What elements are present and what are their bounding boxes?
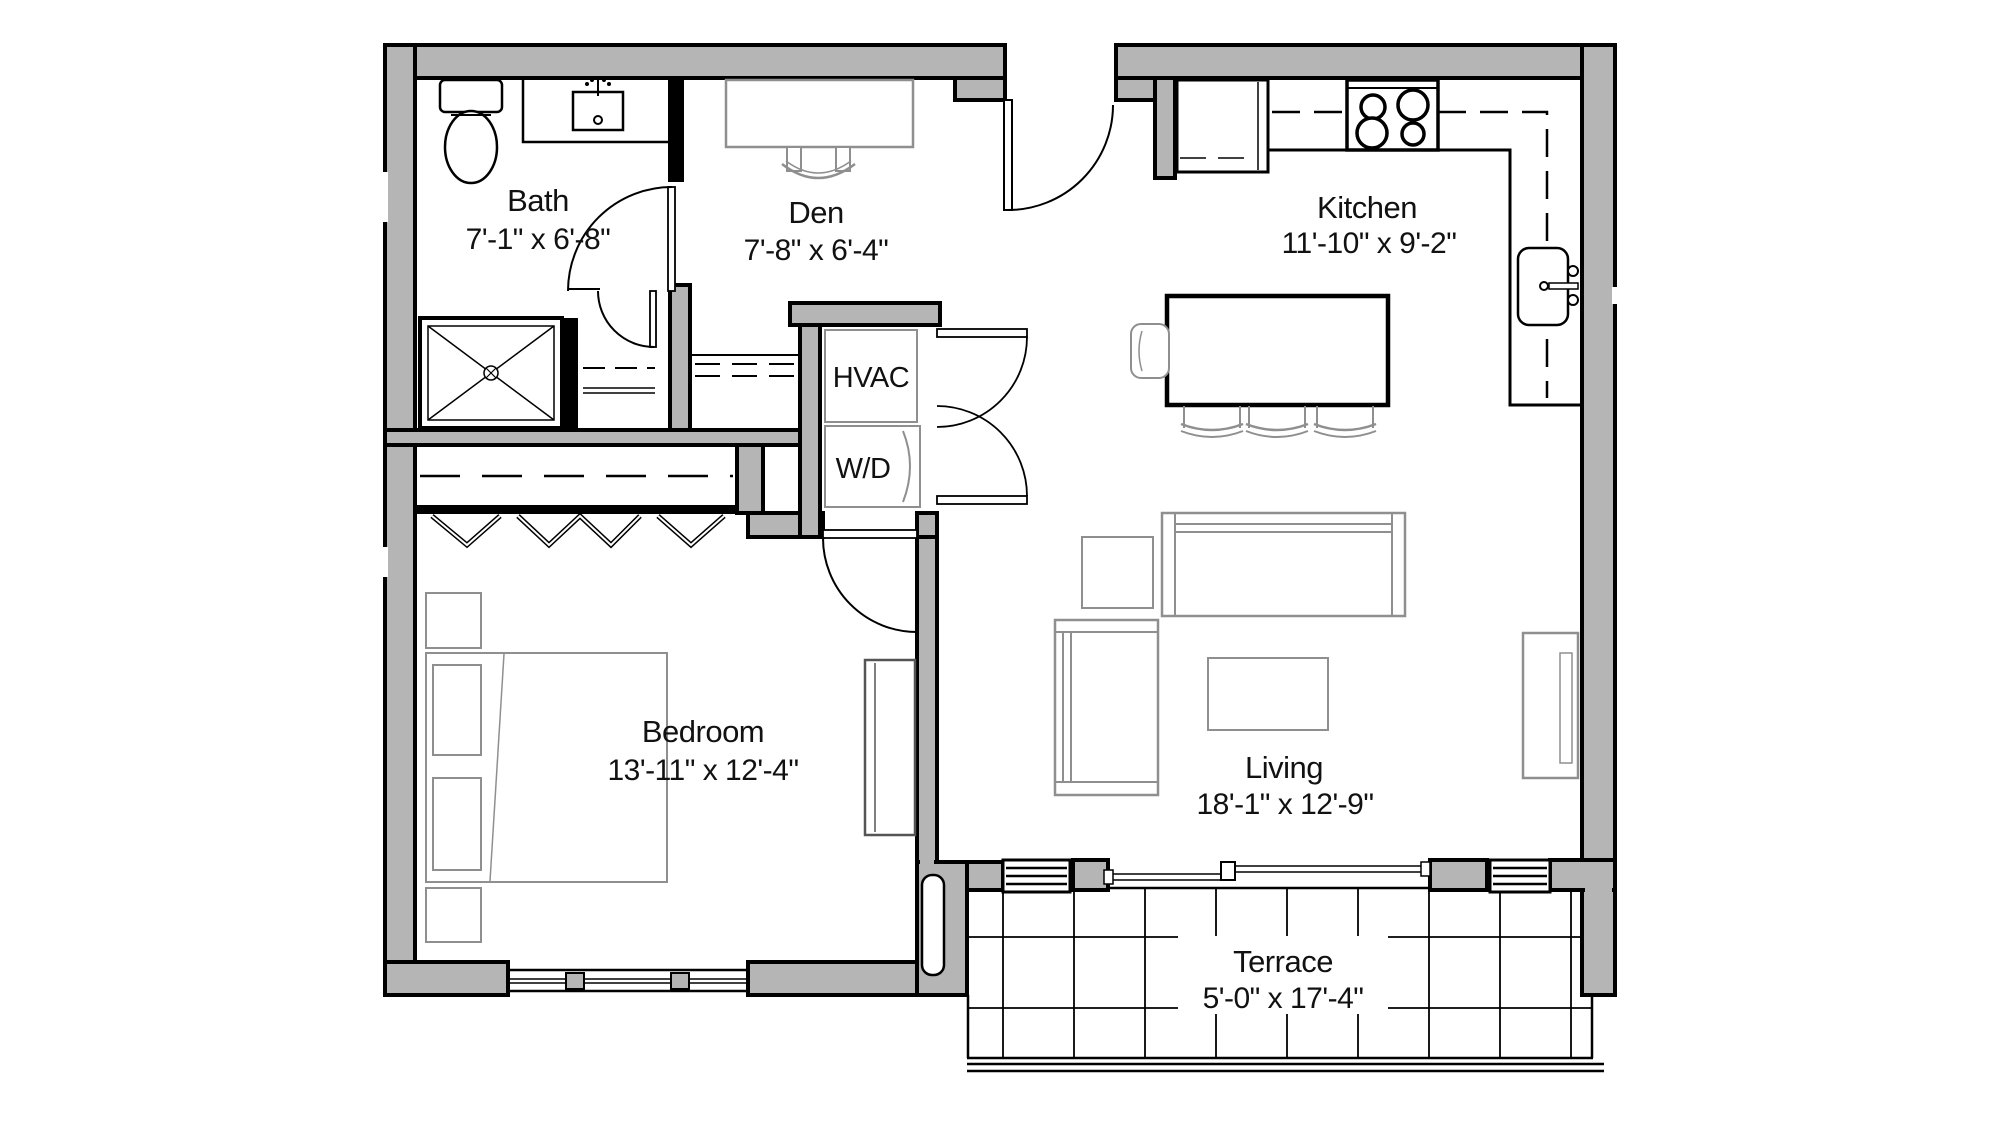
island-chair-icon (1131, 324, 1169, 378)
bedroom-fixtures (420, 476, 915, 942)
den-label: Den (788, 195, 843, 230)
kitchen-dims: 11'-10" x 9'-2" (1282, 227, 1457, 260)
toilet-icon (440, 80, 502, 183)
tv-console-icon (1523, 633, 1578, 778)
wall-linen-right (670, 285, 690, 430)
living-window-unit-icon (1003, 860, 1070, 892)
sofa-icon (1162, 513, 1405, 616)
kitchen-island-icon (1167, 296, 1388, 405)
stove-icon (1347, 80, 1438, 150)
kitchen-label: Kitchen (1317, 190, 1417, 225)
wall-step-left-of-entry (955, 78, 1005, 100)
bedroom-window-icon (508, 970, 748, 991)
bedroom-door-icon (823, 530, 917, 632)
wall-hall-band (385, 430, 820, 445)
terrace-label: Terrace (1233, 944, 1333, 979)
wall-living-bottom-1 (967, 862, 1003, 890)
bath-label: Bath (507, 183, 569, 218)
bath-dims: 7'-1" x 6'-8" (466, 223, 611, 256)
bedroom-label: Bedroom (642, 714, 764, 749)
wall-left (385, 45, 415, 995)
armchair-icon (1055, 620, 1158, 795)
entry-door-icon (1004, 100, 1113, 210)
coffee-table-icon (1208, 658, 1328, 730)
pillow (433, 665, 481, 755)
wall-closet-right (737, 445, 763, 513)
wall-bath-east (668, 78, 684, 182)
linen-door-icon (598, 291, 656, 347)
den-dims: 7'-8" x 6'-4" (744, 234, 889, 267)
wall-top-right (1116, 45, 1615, 78)
living-window-unit-icon (1490, 860, 1550, 892)
desk-chair-icon (782, 147, 855, 178)
wall-right (1582, 45, 1615, 995)
bar-stools-icon (1181, 406, 1376, 437)
nightstand-icon (426, 593, 481, 648)
wall-bedroom-door-right (917, 513, 937, 537)
wall-living-bottom-3 (1430, 860, 1487, 890)
side-table-icon (1082, 537, 1153, 608)
desk-icon (726, 80, 913, 147)
sliding-door-icon (1104, 862, 1430, 884)
hvac-label: HVAC (833, 362, 909, 394)
corner-window-icon (922, 875, 944, 975)
closet-double-doors-icon (937, 329, 1027, 504)
living-label: Living (1245, 750, 1323, 785)
wall-utility-left (800, 325, 820, 537)
wall-top-left (385, 45, 1005, 78)
wd-label: W/D (836, 453, 891, 485)
dresser-icon (865, 660, 915, 835)
wall-shower-right (562, 318, 578, 430)
wall-bedroom-living (917, 537, 937, 862)
floor-plan: Bath 7'-1" x 6'-8" Den 7'-8" x 6'-4" Kit… (0, 0, 2000, 1126)
linen-shelves-icon (568, 289, 655, 393)
den-fixtures (726, 80, 913, 178)
kitchen-sink-icon (1518, 248, 1578, 325)
terrace-dims: 5'-0" x 17'-4" (1203, 982, 1364, 1015)
pillow (433, 778, 481, 870)
refrigerator-icon (1177, 80, 1268, 172)
nightstand-icon (426, 888, 481, 942)
bedroom-dims: 13'-11" x 12'-4" (608, 754, 799, 787)
wall-living-bottom-2 (1073, 860, 1108, 890)
shower-icon (420, 318, 562, 428)
hall-niche-shelf-icon (690, 355, 800, 376)
wall-closet-front (415, 505, 737, 514)
bathroom-vanity-icon (523, 76, 668, 142)
bifold-doors-icon (432, 516, 724, 545)
living-dims: 18'-1" x 12'-9" (1196, 788, 1373, 821)
